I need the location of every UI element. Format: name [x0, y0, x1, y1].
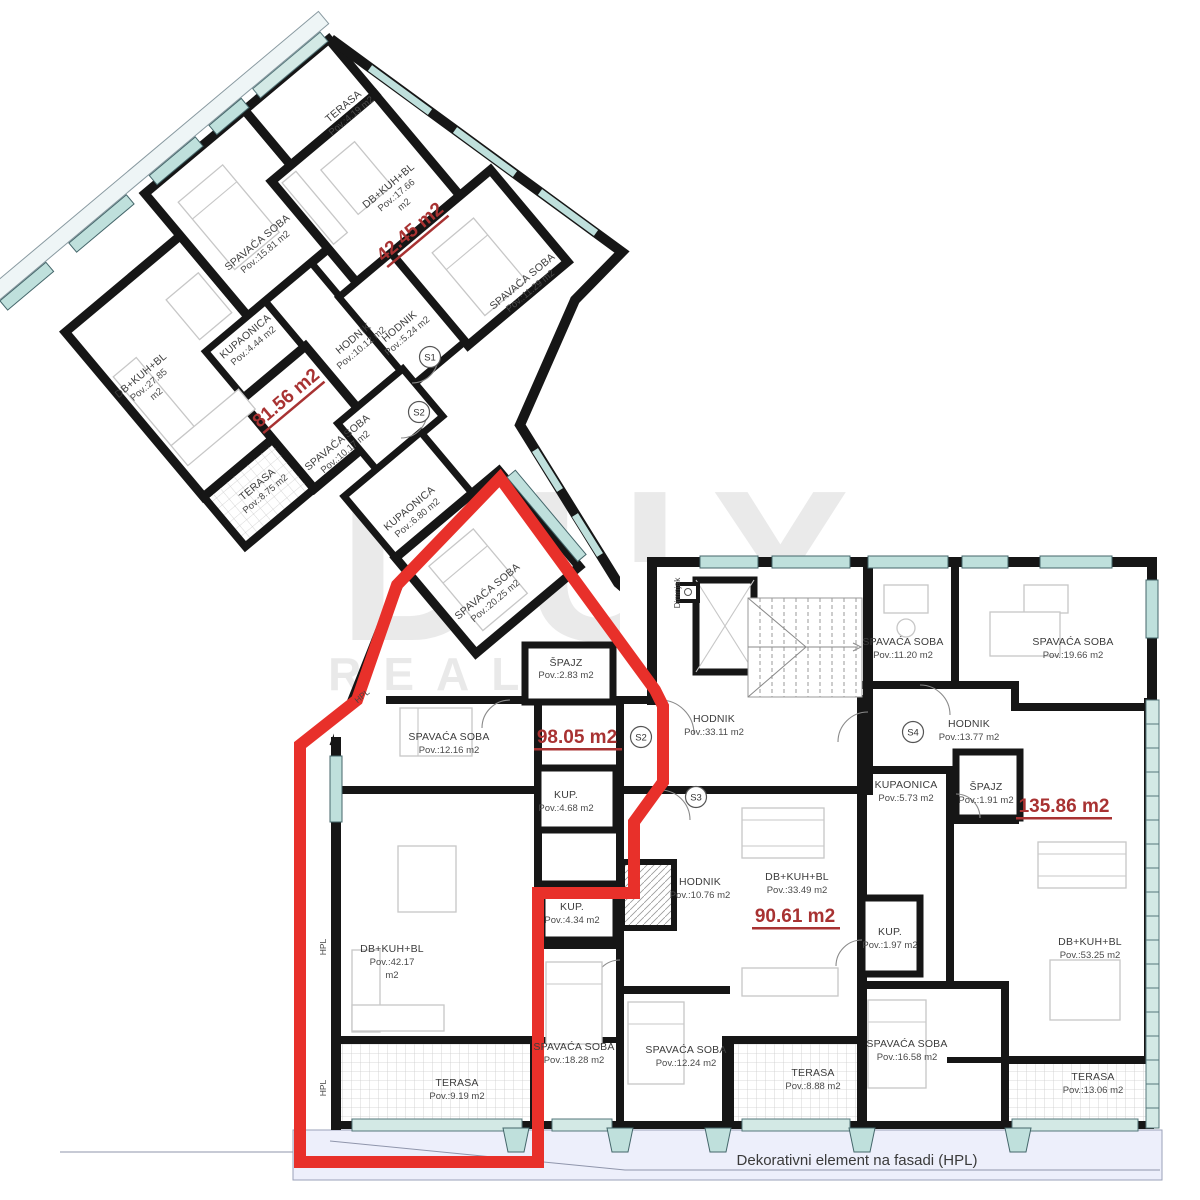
window: [700, 556, 758, 568]
room-area: Pov.:2.83 m2: [538, 670, 593, 681]
unit-marker-s2: S2: [631, 727, 652, 748]
room-label: SPAVAĆA SOBA: [866, 1037, 947, 1050]
area-underline: [1016, 817, 1112, 820]
room-label: KUP.: [878, 926, 902, 938]
room-area: Pov.:33.11 m2: [684, 727, 744, 738]
floor-plan-drawing: DUX REAL ESTATE: [0, 0, 1200, 1200]
unit-marker-text: S2: [413, 408, 425, 419]
room-area: Pov.:13.06 m2: [1063, 1085, 1124, 1096]
room-area: Pov.:42.17: [370, 957, 415, 968]
apartment-area-135-86: 135.86 m2: [1019, 796, 1110, 817]
footer-note: Dekorativni element na fasadi (HPL): [737, 1152, 978, 1169]
unit-marker-s1: S1: [420, 347, 441, 368]
terrace-railing: [742, 1119, 850, 1131]
room-area-unit: m2: [385, 970, 398, 981]
room-label: ŠPAJZ: [970, 780, 1003, 793]
room-area: Pov.:53.25 m2: [1060, 950, 1121, 961]
facade-material-label: HPL: [318, 938, 328, 955]
unit-marker-s3: S3: [686, 787, 707, 808]
room-label: SPAVAĆA SOBA: [862, 635, 943, 648]
room-area: Pov.:10.76 m2: [670, 890, 731, 901]
elevator: [696, 580, 754, 672]
room-label: SPAVAĆA SOBA: [533, 1040, 614, 1053]
room-area: Pov.:12.24 m2: [656, 1058, 717, 1069]
room-area: Pov.:9.19 m2: [429, 1091, 484, 1102]
room-label: KUP.: [554, 789, 578, 801]
room-label: KUPAONICA: [875, 779, 938, 791]
unit-marker-text: S2: [635, 733, 647, 744]
unit-marker-s4: S4: [903, 722, 924, 743]
area-underline: [534, 748, 622, 751]
window: [962, 556, 1008, 568]
room-area: Pov.:4.68 m2: [538, 803, 593, 814]
room-label: HODNIK: [679, 876, 721, 888]
area-underline: [752, 927, 840, 930]
room-area: Pov.:19.66 m2: [1043, 650, 1104, 661]
room-area: Pov.:5.73 m2: [878, 793, 933, 804]
unit-marker-s2-upper: S2: [409, 402, 430, 423]
facade-material-label: HPL: [318, 1079, 328, 1096]
room-label: SPAVAĆA SOBA: [645, 1043, 726, 1056]
room-label: HODNIK: [693, 713, 735, 725]
room-label: KUP.: [560, 901, 584, 913]
room-area: Pov.:13.77 m2: [939, 732, 1000, 743]
room-area: Pov.:33.49 m2: [767, 885, 828, 896]
chimney-label: Dimnjak: [672, 577, 682, 608]
room-area: Pov.:4.34 m2: [544, 915, 599, 926]
room-label: DB+KUH+BL: [765, 871, 829, 883]
room-area: Pov.:1.91 m2: [958, 795, 1013, 806]
apartment-area-98-05: 98.05 m2: [537, 727, 617, 748]
room-label: TERASA: [791, 1067, 834, 1079]
room-label: DB+KUH+BL: [360, 943, 424, 955]
room-area: Pov.:8.88 m2: [785, 1081, 840, 1092]
unit-marker-text: S4: [907, 728, 919, 739]
room-area: Pov.:16.58 m2: [877, 1052, 938, 1063]
unit-marker-text: S3: [690, 793, 702, 804]
room-label: HODNIK: [948, 718, 990, 730]
window: [1040, 556, 1112, 568]
room-label: SPAVAĆA SOBA: [1032, 635, 1113, 648]
room-area: Pov.:1.97 m2: [862, 940, 917, 951]
glass-railing: [1146, 700, 1159, 1128]
room-area: Pov.:18.28 m2: [544, 1055, 605, 1066]
apartment-area-90-61: 90.61 m2: [755, 906, 835, 927]
room-label: ŠPAJZ: [550, 656, 583, 669]
room-label: DB+KUH+BL: [1058, 936, 1122, 948]
window: [772, 556, 850, 568]
window: [330, 756, 342, 822]
window: [868, 556, 948, 568]
stairs: [748, 598, 862, 697]
terrace-railing: [552, 1119, 612, 1131]
floor-plan-page: DUX REAL ESTATE: [0, 0, 1200, 1200]
window: [1146, 580, 1158, 638]
room-label: SPAVAĆA SOBA: [408, 730, 489, 743]
room-label: TERASA: [1071, 1071, 1114, 1083]
room-area: Pov.:12.16 m2: [419, 745, 480, 756]
room-label: TERASA: [435, 1077, 478, 1089]
room-area: Pov.:11.20 m2: [873, 650, 933, 661]
unit-marker-text: S1: [424, 353, 436, 364]
terrace-railing: [352, 1119, 522, 1131]
